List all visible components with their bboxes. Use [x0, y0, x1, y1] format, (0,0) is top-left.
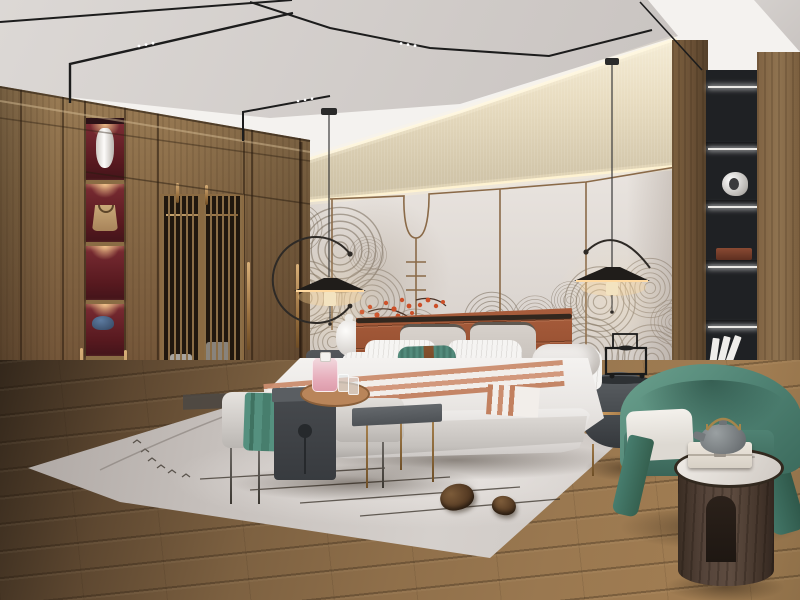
bench-shadow [230, 465, 480, 501]
shelf-led-strip [708, 266, 758, 268]
cabinet-handle [176, 183, 179, 203]
table-arch-cutout [706, 496, 736, 562]
side-table-leg [400, 420, 402, 470]
ceiling-corner-panel [740, 0, 800, 60]
shelf-divider [706, 260, 760, 264]
niche-hat [92, 316, 114, 330]
door-handle [296, 264, 299, 348]
niche-vase [96, 128, 114, 168]
perfume-bottle [312, 358, 338, 392]
cabinet-handle [205, 185, 208, 205]
bed-runner-flap [486, 384, 540, 418]
niche-shelf [86, 242, 124, 246]
shelf-led-strip [708, 206, 758, 208]
side-table-leg [432, 418, 434, 482]
shelf-divider [706, 320, 760, 324]
shelf-led-strip [708, 148, 758, 150]
lamp-glow-right [556, 238, 676, 358]
niche-cell [86, 304, 124, 356]
nightstand-leg [592, 444, 594, 476]
niche-shelf [86, 180, 124, 184]
shelf-led-strip [708, 326, 758, 328]
shelf-sculpture [722, 172, 748, 196]
side-table-leg [366, 422, 368, 488]
shelf-divider [706, 200, 760, 204]
shelf-wood-box [716, 248, 752, 260]
shelf-divider [706, 142, 760, 146]
door-handle [247, 262, 250, 350]
bench-leg [230, 446, 232, 504]
niche-cell [86, 246, 124, 300]
niche-handbag [92, 205, 118, 231]
bench-leg [258, 450, 260, 504]
bench-leg [382, 440, 384, 488]
drinking-glass [348, 377, 359, 395]
bedroom-photo [0, 0, 800, 600]
niche-shelf [86, 300, 124, 304]
saddle-table-front [274, 398, 336, 480]
shelf-led-strip [708, 86, 758, 88]
teapot [700, 424, 746, 454]
